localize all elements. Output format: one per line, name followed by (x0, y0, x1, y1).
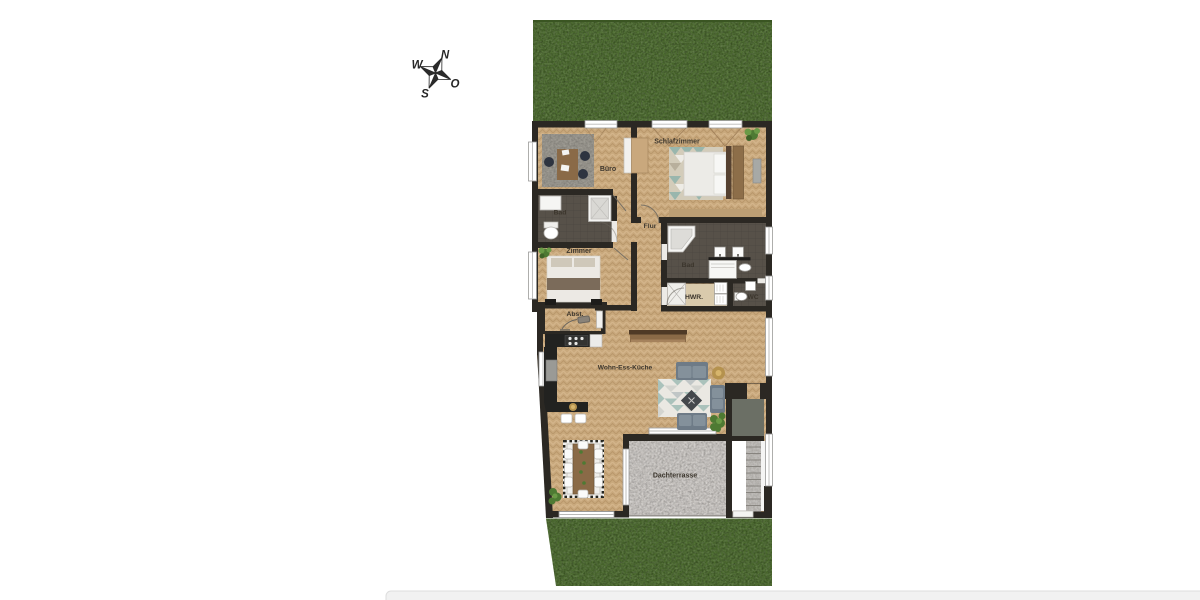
svg-text:N: N (441, 50, 450, 62)
svg-text:O: O (451, 79, 460, 91)
svg-text:Zimmer: Zimmer (566, 248, 592, 255)
svg-text:Abst.: Abst. (567, 311, 584, 318)
svg-text:S: S (421, 89, 429, 101)
svg-text:Dachterrasse: Dachterrasse (653, 473, 697, 480)
svg-text:Flur: Flur (644, 223, 657, 230)
svg-text:Büro: Büro (600, 166, 616, 173)
svg-text:W: W (412, 60, 424, 72)
svg-text:Schlafzimmer: Schlafzimmer (654, 139, 700, 146)
svg-text:Wohn-Ess-Küche: Wohn-Ess-Küche (598, 365, 653, 372)
svg-text:Bad: Bad (554, 210, 567, 217)
svg-text:Bad: Bad (682, 262, 695, 269)
svg-text:HWR.: HWR. (685, 294, 703, 301)
svg-text:WC: WC (747, 294, 758, 301)
